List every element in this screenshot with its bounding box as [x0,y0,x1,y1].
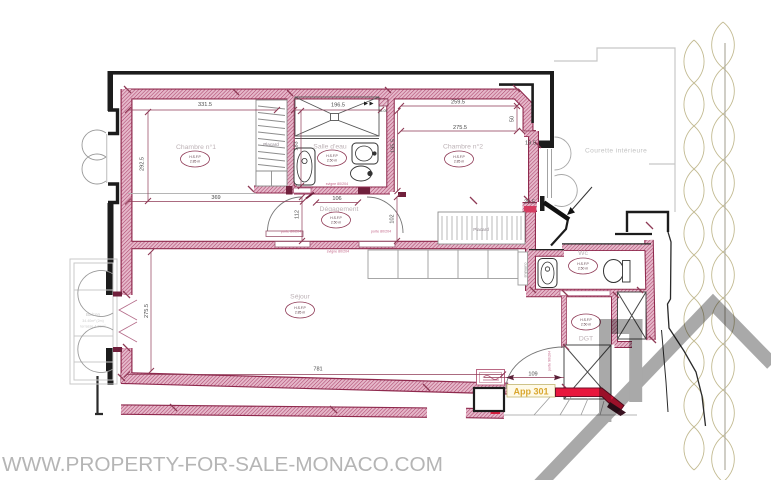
svg-text:19.5: 19.5 [525,141,536,147]
svg-text:2.50 m: 2.50 m [331,221,342,225]
svg-text:App 301: App 301 [513,387,548,397]
svg-text:20.5: 20.5 [524,200,535,206]
svg-text:196.5: 196.5 [331,103,345,109]
svg-text:Chambre n°2: Chambre n°2 [443,143,483,151]
svg-text:svigne 80/204: svigne 80/204 [327,250,349,254]
svg-text:183: 183 [294,141,300,150]
svg-text:781: 781 [313,367,322,373]
svg-text:cumulus: cumulus [524,263,529,278]
svg-text:44.05: 44.05 [379,109,388,113]
svg-text:275.5: 275.5 [144,304,150,318]
svg-text:WWW.PROPERTY-FOR-SALE-MONACO.C: WWW.PROPERTY-FOR-SALE-MONACO.COM [2,453,443,476]
svg-text:2.85 m: 2.85 m [190,160,201,164]
svg-text:H.S.F.P: H.S.F.P [580,318,592,322]
svg-text:195.5: 195.5 [391,139,397,153]
svg-text:109: 109 [528,372,537,378]
svg-text:2.50 m: 2.50 m [581,323,592,327]
svg-text:H.S.F.P: H.S.F.P [326,154,338,158]
svg-text:2.50 m: 2.50 m [578,267,589,271]
svg-text:2.85 m: 2.85 m [295,311,306,315]
svg-text:106: 106 [332,196,341,202]
svg-text:Placard: Placard [473,227,489,232]
svg-text:H.S.F.P: H.S.F.P [189,155,201,159]
svg-text:369: 369 [211,195,220,201]
svg-text:Wc: Wc [578,250,588,257]
svg-text:Salle d'eau: Salle d'eau [313,144,347,151]
svg-text:2.85 m: 2.85 m [454,160,465,164]
svg-text:2.50 m: 2.50 m [327,159,338,163]
svg-text:331.5: 331.5 [198,102,212,108]
svg-text:H.S.F.P: H.S.F.P [294,306,306,310]
svg-text:34.40m² (2m): 34.40m² (2m) [82,319,104,323]
svg-text:292.5: 292.5 [140,157,146,171]
svg-text:H.S.F.P: H.S.F.P [330,216,342,220]
svg-text:porte 80/204: porte 80/204 [281,230,301,234]
svg-text:svigne 80/204: svigne 80/204 [326,182,348,186]
svg-text:275.5: 275.5 [453,125,467,131]
svg-text:112: 112 [295,210,301,219]
svg-text:102: 102 [390,214,396,223]
svg-text:porte 90/204: porte 90/204 [548,351,552,371]
svg-text:Placard: Placard [263,142,279,147]
svg-text:Séjour: Séjour [290,294,310,301]
svg-text:50: 50 [510,116,516,122]
svg-text:Courette intérieure: Courette intérieure [585,148,647,155]
svg-text:H.S.F.P: H.S.F.P [453,155,465,159]
svg-text:H.S.F.P: H.S.F.P [577,262,589,266]
svg-text:DGT: DGT [579,336,593,343]
svg-text:Chambre n°1: Chambre n°1 [176,143,216,151]
svg-text:porte 80/204: porte 80/204 [371,230,391,234]
svg-text:259.5: 259.5 [451,100,465,106]
